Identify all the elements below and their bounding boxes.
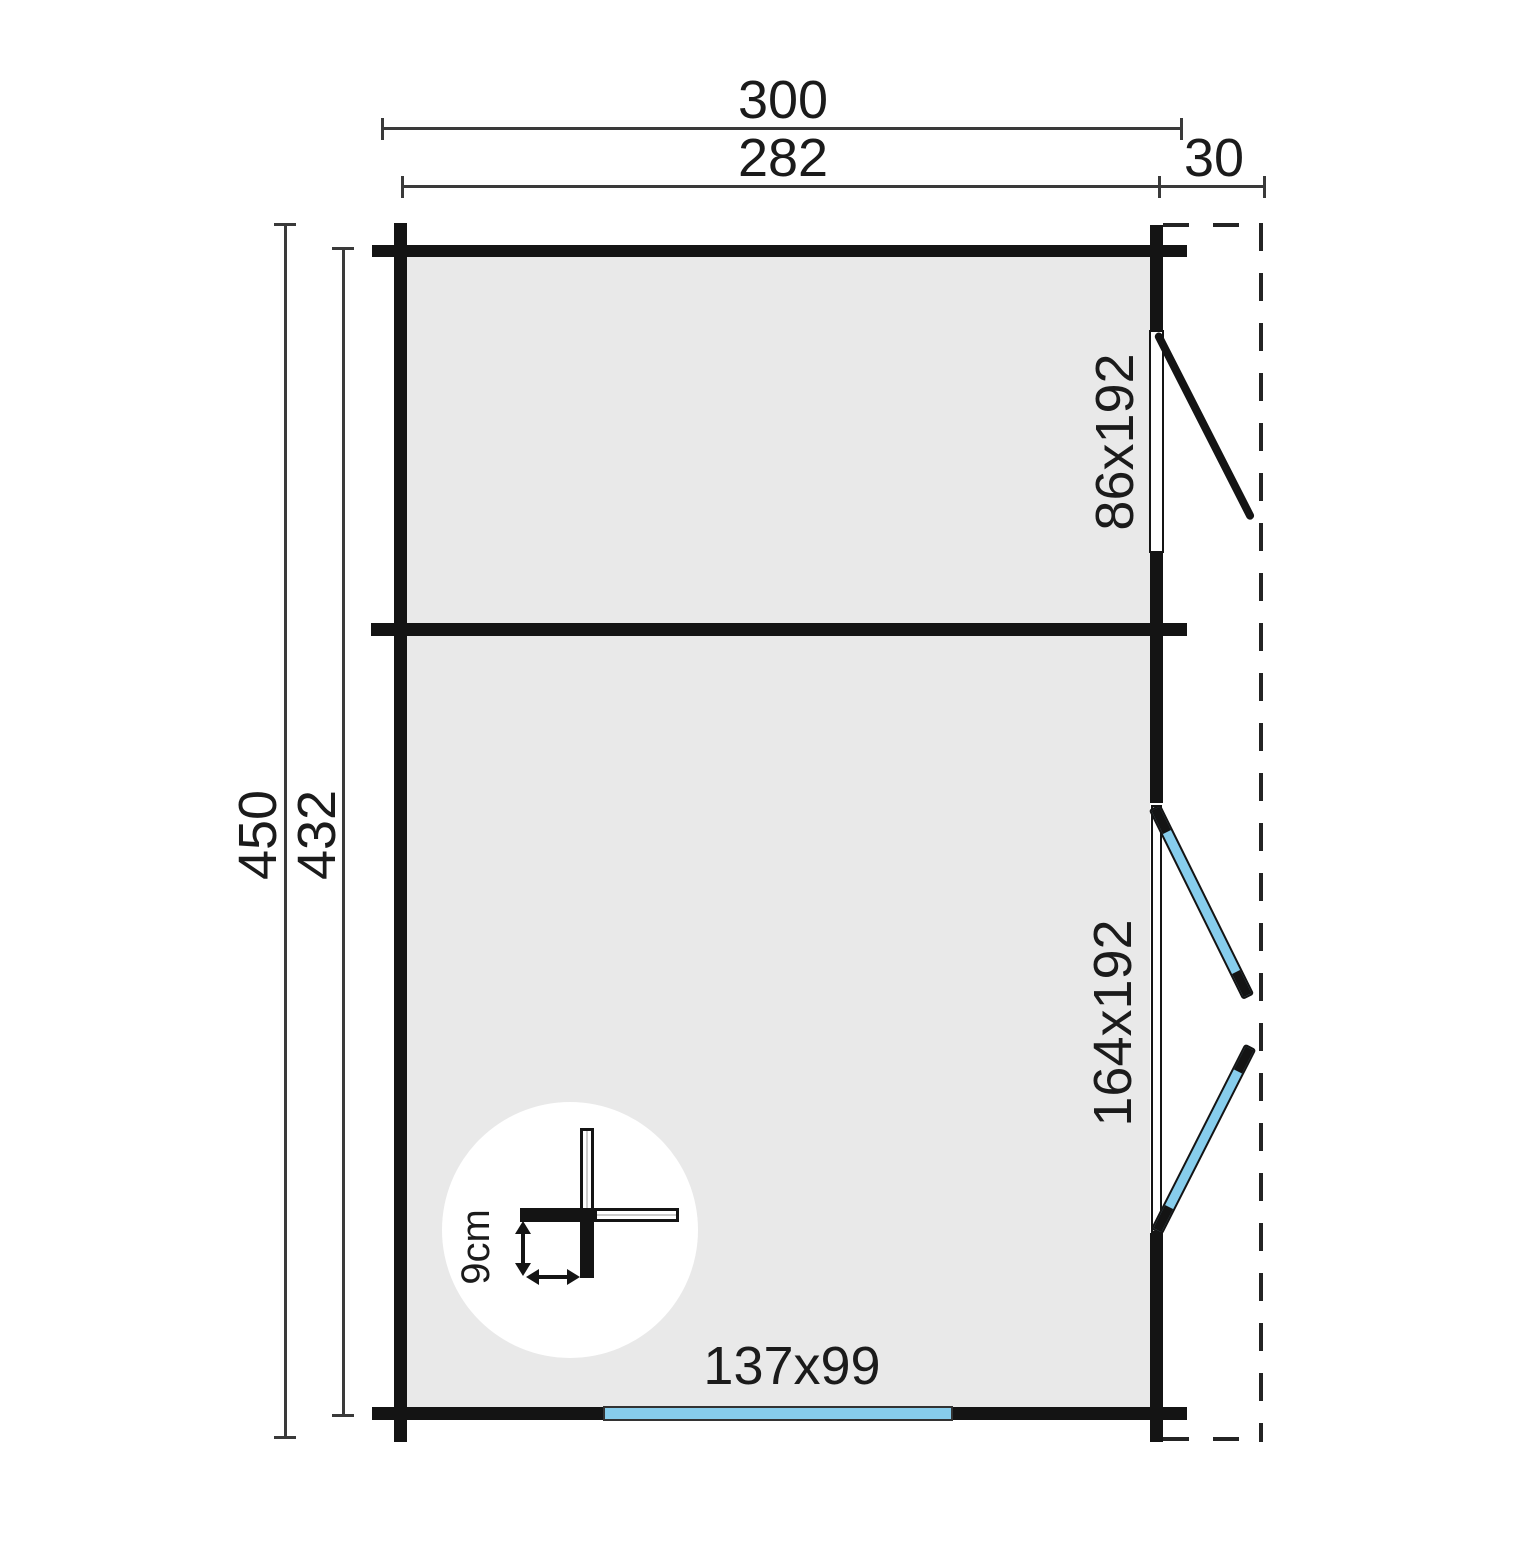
arrow-shaft [536, 1275, 570, 1279]
dim-inner-depth-tick-bottom [332, 1414, 354, 1417]
detail-thickness-label: 9cm [456, 1209, 496, 1285]
dim-inner-depth-tick-top [332, 247, 354, 250]
window-glazing [603, 1406, 953, 1421]
dim-total-depth-tick-top [274, 223, 296, 226]
detail-log-horizontal-white [594, 1208, 679, 1222]
single-door-label: 86x192 [1088, 353, 1142, 530]
dim-total-width-tick-left [381, 118, 384, 140]
dim-inner-width-label: 282 [738, 131, 828, 185]
double-door-upper-leaf [1149, 804, 1255, 1000]
wall-right-upper [1150, 225, 1163, 330]
dim-inner-depth-label: 432 [290, 790, 344, 880]
partition-wall [371, 623, 1187, 636]
detail-log-vertical-black [580, 1208, 594, 1278]
double-door-lower-leaf [1151, 1044, 1257, 1235]
dim-overhang-label: 30 [1184, 131, 1244, 185]
floor-plan-canvas: 300 282 30 450 432 137x99 86x192 164x192 [0, 0, 1536, 1543]
dim-total-depth-label: 450 [231, 790, 285, 880]
overhang-dashed-top [1163, 223, 1259, 227]
wall-right-middle [1150, 553, 1163, 803]
dim-inner-width-tick-left [401, 176, 404, 198]
single-door-frame [1149, 330, 1164, 553]
overhang-dashed-right [1259, 223, 1263, 1442]
window-label: 137x99 [703, 1339, 880, 1393]
wall-top [372, 245, 1187, 257]
dim-total-width-tick-right [1180, 118, 1183, 140]
double-door-frame [1151, 805, 1162, 1233]
arrow-head-right-icon [567, 1269, 580, 1285]
single-door-swing-leaf [1153, 331, 1255, 521]
detail-arrow-vertical [515, 1221, 531, 1276]
double-door-label: 164x192 [1086, 919, 1140, 1126]
detail-arrow-horizontal [526, 1269, 580, 1285]
dim-total-depth-tick-bottom [274, 1436, 296, 1439]
wall-left [394, 223, 407, 1442]
detail-log-vertical-white [580, 1128, 594, 1211]
arrow-shaft [521, 1231, 525, 1266]
overhang-dashed-bottom [1163, 1437, 1259, 1441]
dim-overhang-tick-right [1263, 176, 1266, 198]
wall-right-lower [1150, 1233, 1163, 1442]
dim-total-width-label: 300 [738, 73, 828, 127]
